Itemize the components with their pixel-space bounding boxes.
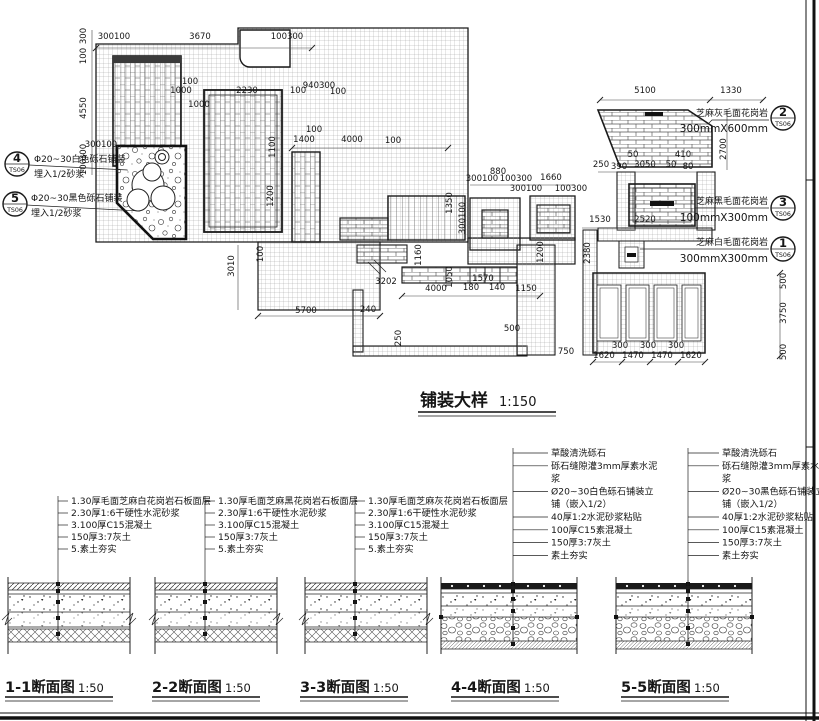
note-line: 铺（嵌入1/2） xyxy=(551,498,612,510)
paving-plan-svg: 3001003670100300300100455030010010010002… xyxy=(0,0,819,721)
plan-title-scale: 1:150 xyxy=(499,395,536,410)
note-line: 3.100厚C15混凝土 xyxy=(218,519,299,531)
dim-label: 1470 xyxy=(651,351,673,361)
dim-label: 100 xyxy=(306,125,322,135)
section-titles: 1-1断面图 1:50 2-2断面图 1:50 3-3断面图 1:50 4-4断… xyxy=(5,678,729,701)
note-line: 3.100厚C15混凝土 xyxy=(368,519,449,531)
note-line: 40厚1:2水泥砂浆粘贴 xyxy=(551,511,642,523)
note-line: 1.30厚毛面芝麻白花岗岩石板面层 xyxy=(71,495,211,507)
note-line: 150厚3:7灰土 xyxy=(218,531,278,543)
dim-label: 100 xyxy=(385,136,401,146)
callout-label: 300mmX600mm xyxy=(680,123,768,135)
dim-label: 300 xyxy=(79,28,89,44)
plan-courtyard xyxy=(353,245,555,356)
note-line: 150厚3:7灰土 xyxy=(71,531,131,543)
note-line: 素土夯实 xyxy=(551,549,588,561)
callout-bubble-1: 1 TS06 xyxy=(771,236,795,261)
dim-label: 1470 xyxy=(622,351,644,361)
callout-bubble-2: 2 TS06 xyxy=(771,105,795,130)
dim-label: 3750 xyxy=(779,302,789,324)
callout-number: 1 xyxy=(779,236,787,250)
section-scale: 1:50 xyxy=(524,681,550,695)
section-scale: 1:50 xyxy=(373,681,399,695)
section-2-2-drawing xyxy=(149,577,283,654)
dim-label: 1530 xyxy=(589,215,611,225)
note-line: 1.30厚毛面芝麻灰花岗岩石板面层 xyxy=(368,495,508,507)
plan-landing xyxy=(340,218,388,240)
dim-label: 5700 xyxy=(295,306,317,316)
section-title: 2-2断面图 xyxy=(152,678,222,696)
dim-label: 390 xyxy=(611,162,627,172)
note-line: 浆 xyxy=(551,473,560,485)
dim-label: 4550 xyxy=(79,97,89,119)
plan-walk-band xyxy=(292,152,320,242)
note-line: 5.素土夯实 xyxy=(71,543,117,555)
section-scale: 1:50 xyxy=(694,681,720,695)
note-line: 2.30厚1:6干硬性水泥砂浆 xyxy=(368,507,477,519)
plan-slab-area-1-edge xyxy=(113,56,181,63)
dim-label: 2380 xyxy=(583,242,593,264)
dim-label: 1570 xyxy=(472,274,494,284)
note-line: Ø20~30白色砾石铺装立 xyxy=(551,485,654,497)
callout-bubble-3: 3 TS06 xyxy=(771,195,795,220)
dim-label: 1620 xyxy=(680,351,702,361)
note-line: 砾石缝隙灌3mm厚素水泥 xyxy=(722,460,819,472)
note-line: 5.素土夯实 xyxy=(368,543,414,555)
plan-square-2-inset xyxy=(537,205,570,233)
section-title: 4-4断面图 xyxy=(451,678,521,696)
dim-label: 240 xyxy=(360,305,376,315)
callout-label: Φ20~30黑色砾石铺装 xyxy=(31,192,123,204)
dim-label: 100300 xyxy=(500,174,532,184)
dim-label: 4000 xyxy=(425,284,447,294)
dim-label: 1000 xyxy=(170,86,192,96)
note-line: Ø20~30黑色砾石铺装立 xyxy=(722,485,819,497)
note-line: 150厚3:7灰土 xyxy=(722,537,782,549)
section-3-3-drawing xyxy=(299,577,433,654)
section-4-4-drawing xyxy=(439,577,579,654)
callout-label: 100mmX300mm xyxy=(680,212,768,224)
dim-label: 1350 xyxy=(445,192,455,214)
dim-label: 250 xyxy=(593,160,609,170)
callout-label: 芝麻白毛面花岗岩 xyxy=(696,236,768,248)
dim-label: 100 xyxy=(256,246,266,262)
dim-label: 1200 xyxy=(266,185,276,207)
dim-label: 1660 xyxy=(540,173,562,183)
dim-label: 2230 xyxy=(236,86,258,96)
note-line: 草酸清洗砾石 xyxy=(722,447,777,459)
note-line: 铺（嵌入1/2） xyxy=(722,498,783,510)
note-line: 2.30厚1:6干硬性水泥砂浆 xyxy=(218,507,327,519)
dim-label: 1100 xyxy=(268,136,278,158)
plan-square-1-inset xyxy=(482,210,508,238)
note-line: 素土夯实 xyxy=(722,549,759,561)
section-scale: 1:50 xyxy=(225,681,251,695)
dim-label: 300100 xyxy=(510,184,542,194)
note-line: 2.30厚1:6干硬性水泥砂浆 xyxy=(71,507,180,519)
dim-label: 300100 xyxy=(98,32,130,42)
section-1-1-drawing xyxy=(2,577,136,654)
dim-label: 4000 xyxy=(341,135,363,145)
dim-label: 750 xyxy=(558,347,574,357)
note-line: 浆 xyxy=(722,473,731,485)
dim-label: 500 xyxy=(779,273,789,289)
dim-label: 1160 xyxy=(414,244,424,266)
note-line: 40厚1:2水泥砂浆粘贴 xyxy=(722,511,813,523)
dim-label: 2520 xyxy=(634,215,656,225)
plan-title: 铺装大样 1:150 xyxy=(418,390,556,416)
callout-sheet-ref: TS06 xyxy=(774,121,791,128)
note-line: 3.100厚C15混凝土 xyxy=(71,519,152,531)
dim-label: 1330 xyxy=(720,86,742,96)
callout-sheet-ref: TS06 xyxy=(8,167,25,174)
dim-label: 1050 xyxy=(445,266,455,288)
dim-label: 1200 xyxy=(536,241,546,263)
note-line: 150厚3:7灰土 xyxy=(551,537,611,549)
dim-label: 2700 xyxy=(719,138,729,160)
callout-label: Φ20~30白色砾石铺装 xyxy=(34,153,126,165)
dim-label: 1150 xyxy=(515,284,537,294)
dim-label: 3202 xyxy=(375,277,397,287)
note-line: 100厚C15素混凝土 xyxy=(551,524,633,536)
dim-label: 300 xyxy=(612,341,628,351)
plan-slab-area-2 xyxy=(204,90,282,232)
dim-label: 100300 xyxy=(555,184,587,194)
callout-bubble-4: 4 TS06 xyxy=(5,151,29,176)
dim-label: 100 xyxy=(330,87,346,97)
dim-label: 50 xyxy=(666,160,677,170)
dim-label: 80 xyxy=(683,162,694,172)
dim-label: 3670 xyxy=(189,32,211,42)
dim-label: 3010 xyxy=(227,255,237,277)
dim-label: 300100 xyxy=(458,202,468,234)
callout-label: 埋入1/2砂浆 xyxy=(34,168,85,180)
dim-label: 1620 xyxy=(593,351,615,361)
dim-label: 100 xyxy=(79,48,89,64)
callout-bubble-5: 5 TS06 xyxy=(3,191,27,216)
callout-sheet-ref: TS06 xyxy=(774,211,791,218)
note-line: 150厚3:7灰土 xyxy=(368,531,428,543)
callout-sheet-ref: TS06 xyxy=(6,207,23,214)
dim-label: 300 xyxy=(668,341,684,351)
dim-label: 1000 xyxy=(188,100,210,110)
callout-label: 埋入1/2砂浆 xyxy=(31,207,82,219)
note-line: 草酸清洗砾石 xyxy=(551,447,606,459)
note-line: 砾石缝隙灌3mm厚素水泥 xyxy=(551,460,657,472)
dim-label: 5100 xyxy=(634,86,656,96)
dim-label: 250 xyxy=(394,330,404,346)
dim-label: 140 xyxy=(489,283,505,293)
dim-label: 180 xyxy=(463,283,479,293)
note-line: 100厚C15素混凝土 xyxy=(722,524,804,536)
callout-label: 300mmX300mm xyxy=(680,253,768,265)
note-line: 5.素土夯实 xyxy=(218,543,264,555)
callout-number: 3 xyxy=(779,195,787,209)
section-5-5-drawing xyxy=(614,577,754,654)
dim-label: 300 xyxy=(640,341,656,351)
dim-label: 50 xyxy=(628,150,639,160)
drawing-sheet: 3001003670100300300100455030010010010002… xyxy=(0,0,819,721)
dim-label: 300100 xyxy=(85,140,117,150)
callout-label: 芝麻灰毛面花岗岩 xyxy=(696,107,768,119)
section-title: 3-3断面图 xyxy=(300,678,370,696)
note-line: 1.30厚毛面芝麻黑花岗岩石板面层 xyxy=(218,495,358,507)
dim-label: 500 xyxy=(779,344,789,360)
section-scale: 1:50 xyxy=(78,681,104,695)
dim-label: 100 xyxy=(290,86,306,96)
dim-label: 300100 xyxy=(466,174,498,184)
dim-label: 410 xyxy=(675,150,691,160)
callout-sheet-ref: TS06 xyxy=(774,252,791,259)
callout-number: 2 xyxy=(779,105,787,119)
dim-label: 3050 xyxy=(634,160,656,170)
callout-number: 5 xyxy=(11,191,19,205)
section-title: 1-1断面图 xyxy=(5,678,75,696)
plan-title-text: 铺装大样 xyxy=(420,390,488,411)
section-drawings xyxy=(2,577,754,654)
callout-number: 4 xyxy=(13,151,21,165)
section-title: 5-5断面图 xyxy=(621,678,691,696)
callout-label: 芝麻黑毛面花岗岩 xyxy=(696,195,768,207)
dim-label: 100300 xyxy=(271,32,303,42)
dim-label: 1400 xyxy=(293,135,315,145)
dim-label: 500 xyxy=(504,324,520,334)
